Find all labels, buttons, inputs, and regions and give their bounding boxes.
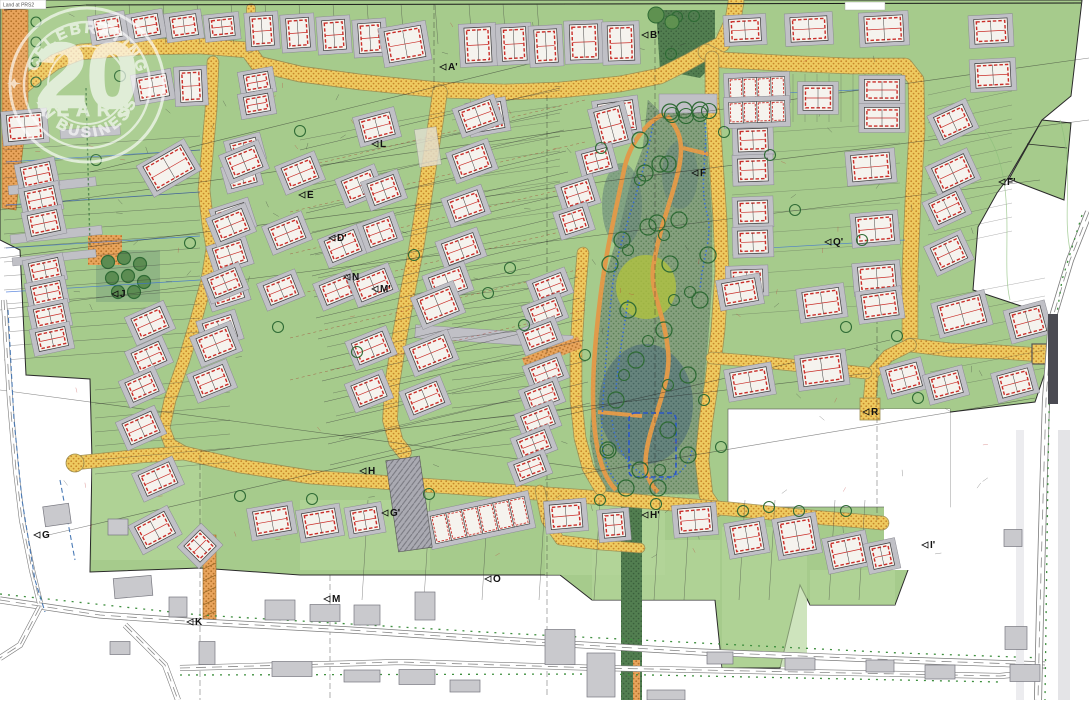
svg-text:D': D'	[337, 233, 347, 244]
svg-text:F': F'	[1007, 177, 1016, 188]
svg-text:N: N	[352, 272, 359, 283]
svg-text:E: E	[307, 190, 314, 201]
svg-text:R: R	[871, 407, 879, 418]
svg-text:O: O	[493, 574, 501, 585]
svg-text:Land at PRS2: Land at PRS2	[3, 3, 34, 9]
svg-text:B': B'	[650, 30, 660, 41]
svg-text:G: G	[42, 530, 50, 541]
svg-text:H': H'	[650, 510, 660, 521]
svg-text:A': A'	[448, 62, 458, 73]
svg-text:M': M'	[380, 284, 391, 295]
svg-text:J: J	[120, 289, 126, 300]
svg-text:F: F	[700, 168, 706, 179]
svg-text:G': G'	[390, 508, 400, 519]
svg-text:K: K	[195, 617, 203, 628]
svg-text:H: H	[368, 466, 375, 477]
svg-text:L: L	[380, 139, 386, 150]
svg-text:Q': Q'	[833, 237, 843, 248]
svg-text:I': I'	[930, 540, 935, 551]
svg-text:M: M	[332, 594, 340, 605]
